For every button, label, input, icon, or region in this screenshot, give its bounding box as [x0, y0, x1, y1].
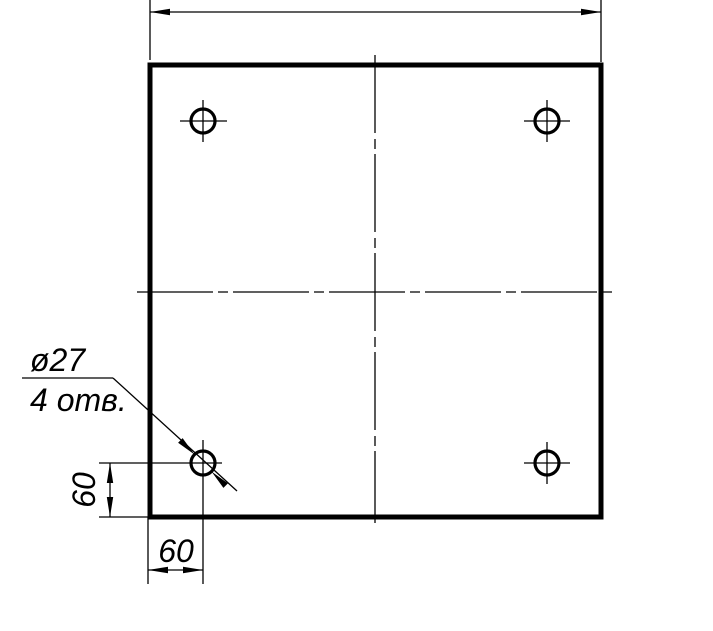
leader-diagonal — [113, 378, 237, 491]
drawing-lines — [22, 0, 612, 584]
arrowheads — [107, 9, 601, 573]
technical-drawing: ø27 4 отв. 60 60 — [0, 0, 713, 631]
hole-crosshairs — [99, 100, 570, 584]
label-hole-diameter: ø27 — [30, 342, 86, 378]
top-dim-arrow-left-icon — [150, 9, 170, 15]
label-hole-count: 4 отв. — [30, 382, 127, 418]
left-dim-arrow-down-icon — [107, 497, 113, 517]
left-dimension-60 — [99, 463, 148, 517]
top-dimension — [150, 0, 601, 62]
label-dim-bottom-60: 60 — [158, 533, 194, 569]
leader-arrow-upper-icon — [178, 438, 194, 454]
top-dim-arrow-right-icon — [581, 9, 601, 15]
label-dim-left-60: 60 — [66, 472, 102, 508]
left-dim-arrow-up-icon — [107, 463, 113, 483]
drawing-canvas: ø27 4 отв. 60 60 — [0, 0, 713, 631]
